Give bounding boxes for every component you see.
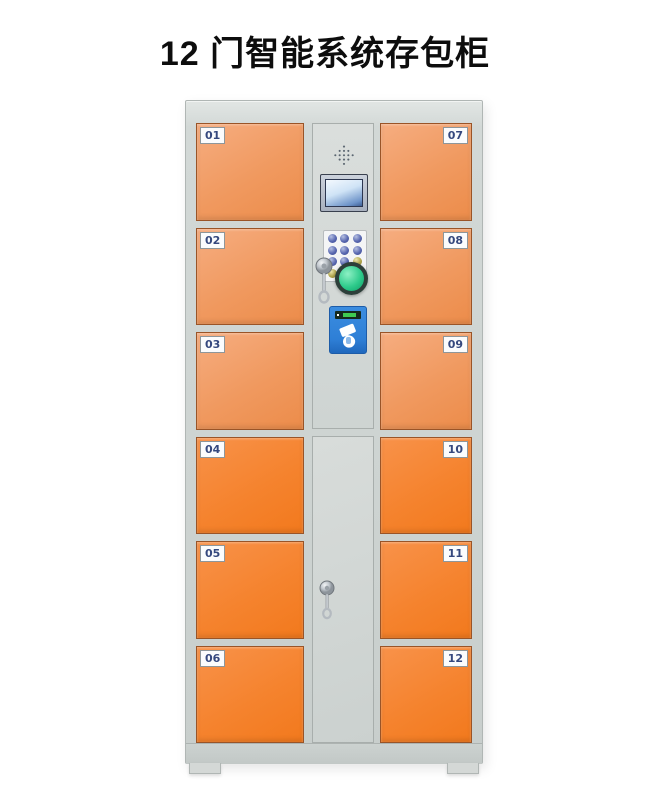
- door-number-label: 09: [443, 336, 468, 353]
- door-number-label: 07: [443, 127, 468, 144]
- cabinet-base: [186, 743, 482, 764]
- keypad-button: [353, 246, 362, 255]
- locker-door-03: 03: [196, 332, 304, 430]
- locker-door-01: 01: [196, 123, 304, 221]
- keypad-button: [353, 234, 362, 243]
- door-number-label: 06: [200, 650, 225, 667]
- door-number-label: 02: [200, 232, 225, 249]
- locker-door-11: 11: [380, 541, 472, 639]
- lower-door-lock: [319, 580, 337, 629]
- keypad-button: [328, 234, 337, 243]
- swipe-card-icon: [337, 323, 361, 351]
- keypad-button: [328, 246, 337, 255]
- keypad-button: [340, 234, 349, 243]
- locker-door-12: 12: [380, 646, 472, 744]
- door-number-label: 03: [200, 336, 225, 353]
- reader-status-dot: [337, 314, 339, 316]
- lcd-display: [320, 174, 368, 212]
- product-photo: 12 门智能系统存包柜 010203040506: [0, 0, 650, 790]
- center-column: [312, 123, 374, 743]
- control-panel: [312, 123, 374, 429]
- door-number-label: 05: [200, 545, 225, 562]
- locker-cabinet: 010203040506: [185, 100, 483, 764]
- speaker-grill-icon: [331, 144, 357, 170]
- keypad-button: [340, 246, 349, 255]
- locker-door-08: 08: [380, 228, 472, 326]
- locker-door-07: 07: [380, 123, 472, 221]
- door-number-label: 12: [443, 650, 468, 667]
- locker-door-05: 05: [196, 541, 304, 639]
- door-number-label: 01: [200, 127, 225, 144]
- right-door-column: 070809101112: [380, 123, 472, 743]
- locker-door-06: 06: [196, 646, 304, 744]
- locker-door-10: 10: [380, 437, 472, 535]
- page-title: 12 门智能系统存包柜: [0, 26, 650, 75]
- reader-display: [335, 311, 361, 319]
- door-number-label: 08: [443, 232, 468, 249]
- locker-door-02: 02: [196, 228, 304, 326]
- cabinet-foot-left: [189, 763, 221, 774]
- door-number-label: 04: [200, 441, 225, 458]
- door-number-label: 11: [443, 545, 468, 562]
- door-number-label: 10: [443, 441, 468, 458]
- green-confirm-button: [335, 262, 368, 295]
- cabinet-foot-right: [447, 763, 479, 774]
- locker-door-04: 04: [196, 437, 304, 535]
- locker-door-09: 09: [380, 332, 472, 430]
- reader-led-digits: [343, 313, 356, 317]
- card-reader: [329, 306, 367, 354]
- left-door-column: 010203040506: [196, 123, 304, 743]
- center-lower-door: [312, 436, 374, 743]
- lcd-screen: [325, 179, 363, 207]
